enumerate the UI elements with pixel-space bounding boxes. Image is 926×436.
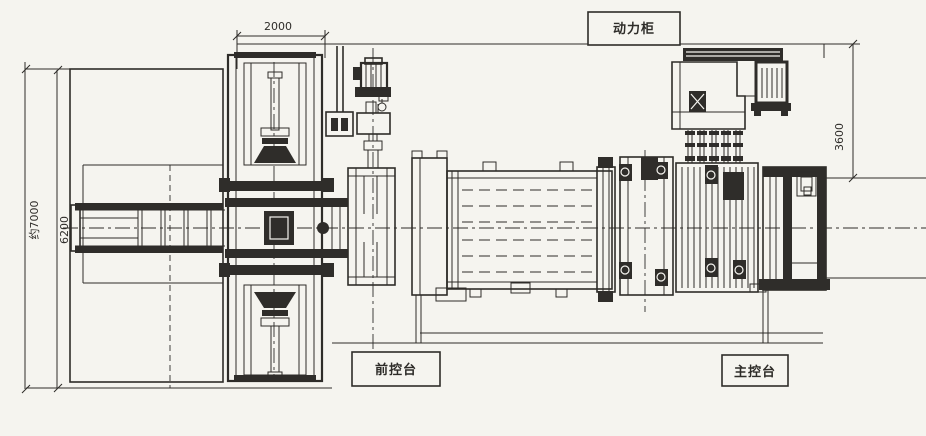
main-console-label-text: 主控台 <box>734 364 776 380</box>
dimension-3600-text: 3600 <box>833 123 846 151</box>
pump-unit <box>751 62 791 116</box>
dimension-2000-text: 2000 <box>264 20 292 33</box>
dimension-6200-text: 6200 <box>58 216 71 244</box>
engineering-drawing: 约7000 6200 2000 3600 <box>0 0 926 436</box>
dimension-6200: 6200 <box>54 66 71 392</box>
barrel-unit <box>412 151 615 343</box>
front-clamp-unit <box>348 58 395 285</box>
front-console-label: 前控台 <box>352 352 440 386</box>
main-drive-motor <box>676 163 766 292</box>
scanned-drawing-sheet: 约7000 6200 2000 3600 <box>0 0 926 436</box>
dimension-3600: 3600 <box>833 40 857 182</box>
sensor-box-unit <box>326 46 353 136</box>
dimension-7000-text: 约7000 <box>28 201 41 240</box>
front-console-label-text: 前控台 <box>375 362 417 378</box>
centerlines <box>63 48 926 388</box>
barrel-body <box>447 171 612 289</box>
press-bed-outline <box>70 69 223 382</box>
foundation-lines <box>332 333 823 343</box>
main-console-label: 主控台 <box>722 355 788 386</box>
power-cabinet-label: 动力柜 <box>588 12 680 45</box>
gearbox-unit <box>619 157 673 295</box>
lower-actuator <box>254 292 296 378</box>
upper-actuator <box>254 72 296 163</box>
power-cabinet-label-text: 动力柜 <box>613 21 655 37</box>
hydraulic-motor <box>353 58 391 97</box>
die-block <box>264 211 294 245</box>
right-end-box <box>759 167 830 343</box>
pipe-bundle <box>685 130 743 163</box>
left-press-machine <box>70 52 348 382</box>
power-cabinet-assembly <box>672 48 791 129</box>
